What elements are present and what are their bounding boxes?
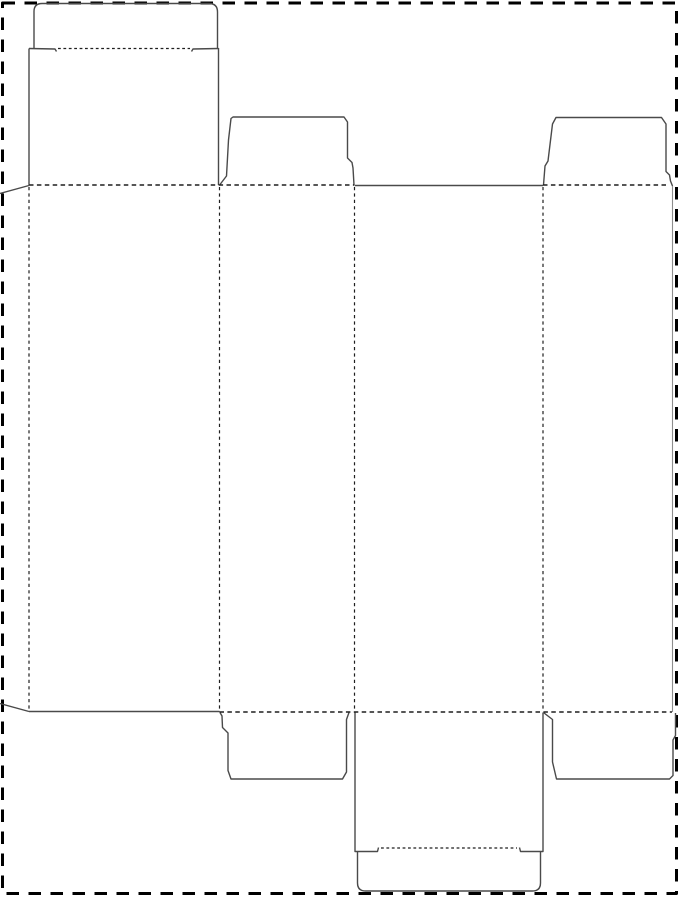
tuck-fold-lines [58, 49, 517, 849]
top-dust-flap-side1 [220, 117, 354, 185]
dieline-svg [0, 0, 681, 900]
outer-cut-border [3, 3, 677, 894]
cut-lines [0, 4, 676, 892]
horizontal-fold-lines [29, 185, 672, 712]
top-tuck-slit-left [29, 49, 57, 52]
bottom-tuck-flap [358, 852, 541, 892]
top-tuck-slit-right [192, 49, 219, 52]
bottom-dust-flap-side2 [544, 713, 676, 780]
bottom-closure-panel-left-edge [355, 713, 379, 852]
top-tuck-flap [34, 4, 218, 49]
border-rect [3, 3, 677, 894]
glue-flap-bottom-slant [0, 704, 29, 712]
bottom-closure-panel-right-edge [520, 713, 544, 852]
bottom-dust-flap-side1 [220, 713, 349, 780]
top-dust-flap-side2 [544, 118, 673, 187]
dieline-template-page [0, 0, 681, 900]
vertical-fold-lines [29, 187, 543, 710]
glue-flap-top-slant [0, 186, 29, 194]
